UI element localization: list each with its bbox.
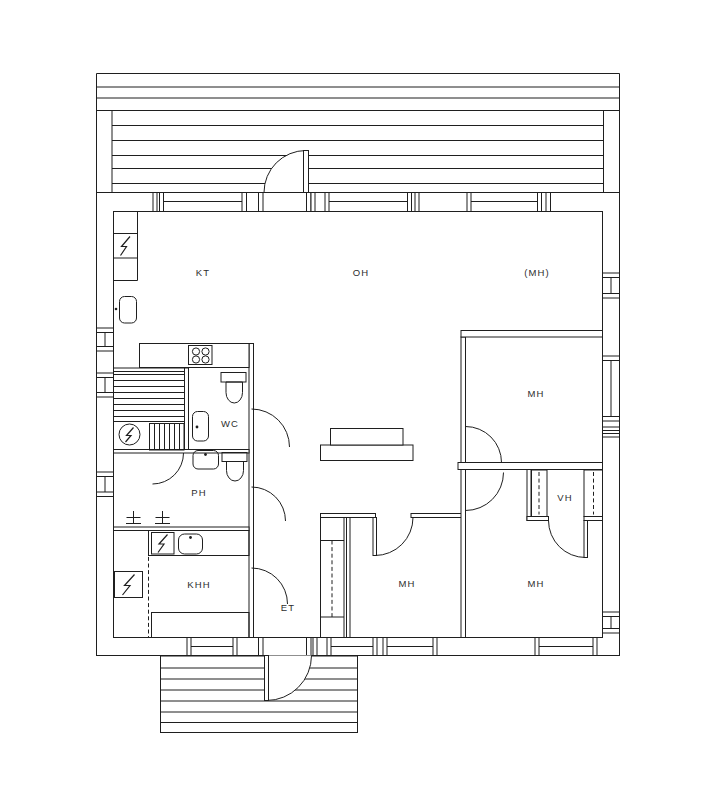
door-jamb xyxy=(307,193,312,212)
stove-icon xyxy=(189,346,213,365)
door-jamb xyxy=(307,638,312,656)
deck-post-right xyxy=(604,111,620,193)
top-deck xyxy=(97,111,620,193)
bottom-deck xyxy=(161,656,358,733)
front-door xyxy=(265,656,312,701)
room-label-oh: OH xyxy=(353,267,369,278)
door-leaf xyxy=(373,518,377,556)
door-jamb xyxy=(259,193,264,212)
hall-closet xyxy=(321,518,345,638)
door-leaf xyxy=(304,151,309,193)
room-label-et: ET xyxy=(281,602,295,613)
top-pergola xyxy=(97,74,620,111)
door-leaf xyxy=(265,656,269,701)
door-leaf xyxy=(584,521,588,558)
room-label-kt: KT xyxy=(196,267,210,278)
fireplace xyxy=(321,429,414,461)
deck-planks xyxy=(161,668,358,723)
room-label-ph: PH xyxy=(191,487,206,498)
room-label-khh: KHH xyxy=(187,579,210,590)
floor-plan-drawing: KT OH (MH) MH VH MH MH WC PH KHH ET xyxy=(0,0,720,793)
deck-post-left xyxy=(97,111,113,193)
floor-plan-canvas: KT OH (MH) MH VH MH MH WC PH KHH ET xyxy=(0,0,720,793)
room-label-mh-top-right: MH xyxy=(528,388,545,399)
room-label-mh-bottom-right: MH xyxy=(528,578,545,589)
room-label-mh-reserve: (MH) xyxy=(524,267,550,278)
kitchen-counter xyxy=(140,344,250,368)
door-jamb xyxy=(259,638,264,656)
room-label-wc: WC xyxy=(221,418,239,429)
terrace-door xyxy=(264,151,309,193)
room-label-vh: VH xyxy=(557,492,572,503)
deck-planks xyxy=(112,126,604,184)
room-label-mh-bottom-middle: MH xyxy=(399,578,416,589)
